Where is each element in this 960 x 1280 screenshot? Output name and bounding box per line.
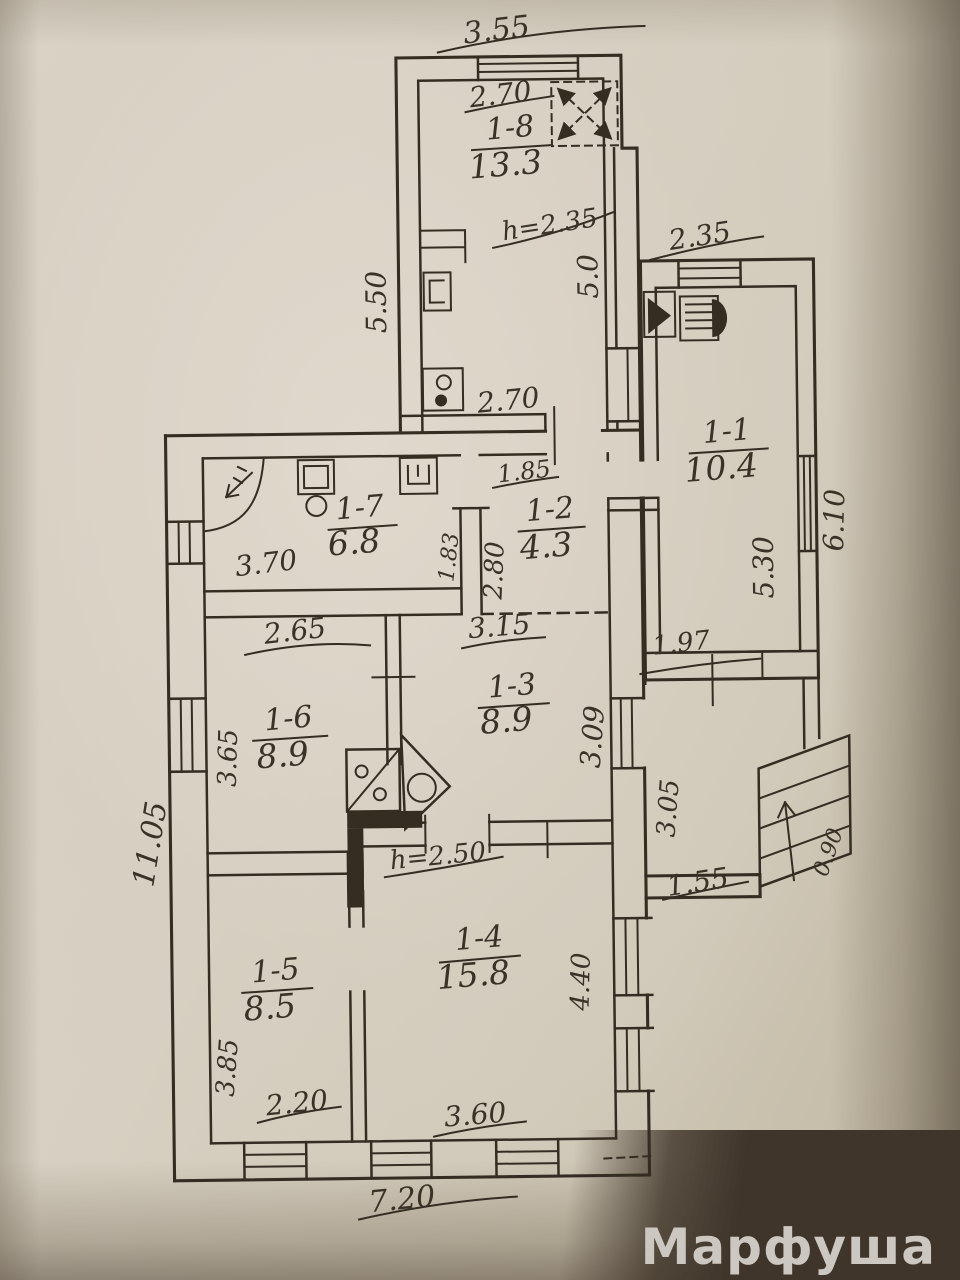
room-13-area: 8.9 — [478, 699, 534, 742]
shower-arrow-icon — [226, 467, 252, 497]
room-17-area: 6.8 — [326, 520, 382, 563]
dim-r12-top: 1.85 — [496, 454, 552, 488]
dim-r11-inner-right: 5.30 — [747, 536, 781, 599]
dim-r11-top: 2.35 — [665, 215, 733, 257]
window-bottom-3 — [496, 1139, 558, 1177]
window-top-11 — [678, 260, 740, 288]
dim-r14-right: 4.40 — [566, 952, 597, 1012]
room-12-area: 4.3 — [517, 524, 574, 567]
window-right-18 — [606, 348, 640, 421]
dim-r15-bottom: 2.20 — [263, 1083, 329, 1122]
room-11-area: 10.4 — [683, 445, 759, 490]
dim-r14-height: h=2.50 — [388, 837, 487, 876]
window-right-porchside — [611, 698, 645, 768]
shower-corner — [203, 458, 265, 532]
dim-top-width: 3.55 — [461, 9, 531, 52]
room-18-area: 13.3 — [467, 142, 543, 187]
watermark: Марфуша — [641, 1218, 936, 1276]
window-bottom-1 — [244, 1142, 306, 1180]
attic-hatch-icon — [551, 81, 618, 146]
dim-porch-left: 3.05 — [651, 778, 685, 838]
dim-r13-right: 3.09 — [574, 704, 612, 769]
dim-bottom-total: 7.20 — [367, 1179, 437, 1220]
window-bottom-2 — [371, 1141, 431, 1179]
wall-stub — [420, 230, 465, 263]
dim-r11-outer-right: 6.10 — [817, 489, 851, 552]
entry-arrow-icon — [778, 802, 796, 880]
dim-r15-left: 3.85 — [211, 1038, 245, 1098]
dim-r18-left: 5.50 — [359, 271, 393, 334]
stove-icon — [423, 368, 464, 410]
kitchen-fixtures — [420, 230, 467, 411]
room-14-area: 15.8 — [435, 952, 511, 997]
window-right-14b — [615, 1028, 654, 1091]
window-left-2 — [169, 698, 207, 771]
dim-r18-top: 2.70 — [466, 74, 533, 114]
dim-r17-bottom: 3.70 — [233, 543, 299, 583]
room-12-number: 1-2 — [524, 490, 575, 529]
dim-r14-bottom: 3.60 — [443, 1096, 508, 1134]
dim-stairs-width: 0.90 — [809, 825, 849, 879]
dim-r18-bottom: 2.70 — [475, 381, 541, 420]
firebox-icon — [644, 292, 676, 337]
room-18-number: 1-8 — [485, 109, 536, 148]
dim-r18-height: h=2.35 — [500, 203, 600, 247]
window-right-11 — [798, 456, 817, 551]
window-left-1 — [167, 521, 205, 563]
dimension-labels: 3.55 2.70 h=2.35 5.50 5.0 2.70 2.35 5.30… — [116, 5, 860, 1223]
dim-r12-left: 2.80 — [478, 541, 510, 601]
floor-plan: 1-8 13.3 1-1 10.4 1-7 6.8 1-2 4.3 1-6 8.… — [0, 0, 960, 1280]
room-16-area: 8.9 — [255, 733, 311, 776]
bathroom-fixtures — [203, 456, 438, 532]
boiler-icon — [680, 296, 728, 341]
dim-r18-right: 5.0 — [571, 254, 605, 299]
dim-r11-bottom: 1.97 — [651, 625, 712, 662]
scanned-floor-plan-photo: 1-8 13.3 1-1 10.4 1-7 6.8 1-2 4.3 1-6 8.… — [0, 0, 960, 1280]
dim-r12-bottom: 3.15 — [467, 607, 532, 645]
dim-left-total: 11.05 — [126, 799, 174, 889]
dim-r17-right: 1.83 — [434, 532, 464, 583]
dim-r16-left: 3.65 — [213, 729, 244, 788]
floor-plan-drawing: 1-8 13.3 1-1 10.4 1-7 6.8 1-2 4.3 1-6 8.… — [0, 0, 960, 1280]
window-right-14a — [613, 918, 652, 995]
room-15-area: 8.5 — [242, 986, 298, 1029]
sink-icon — [424, 272, 451, 310]
toilet-icon — [298, 460, 335, 516]
water-heater-icon — [400, 458, 437, 494]
